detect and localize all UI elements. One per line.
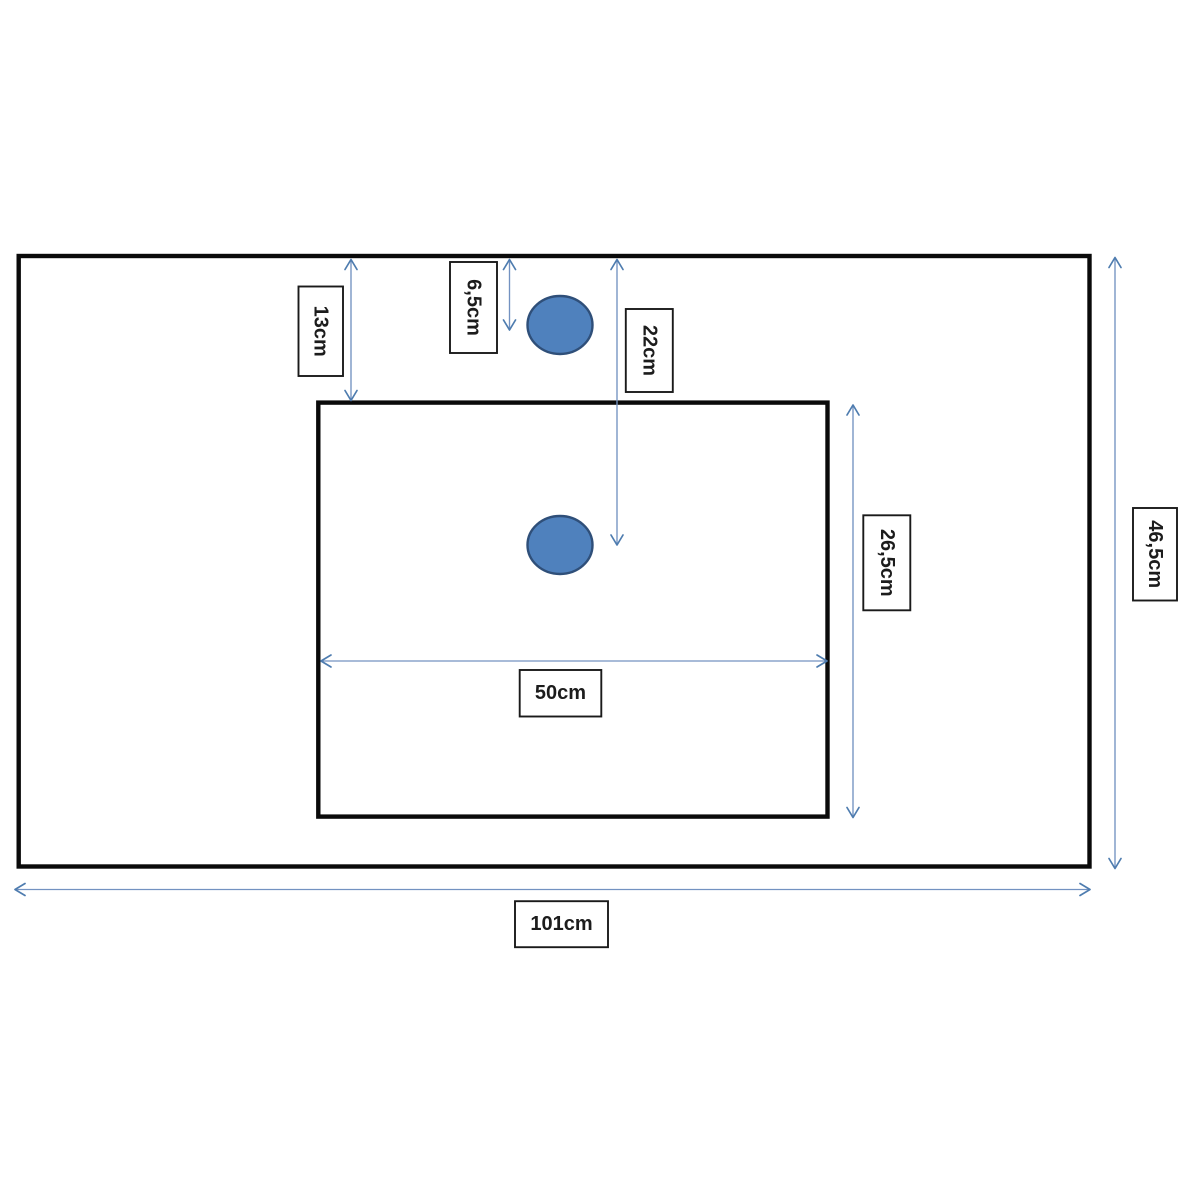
svg-text:26,5cm: 26,5cm [876, 529, 898, 597]
svg-text:46,5cm: 46,5cm [1144, 520, 1166, 588]
svg-text:22cm: 22cm [638, 325, 660, 376]
svg-text:50cm: 50cm [535, 682, 586, 704]
svg-text:13cm: 13cm [310, 306, 332, 357]
svg-text:101cm: 101cm [530, 913, 592, 935]
svg-text:6,5cm: 6,5cm [463, 279, 485, 336]
